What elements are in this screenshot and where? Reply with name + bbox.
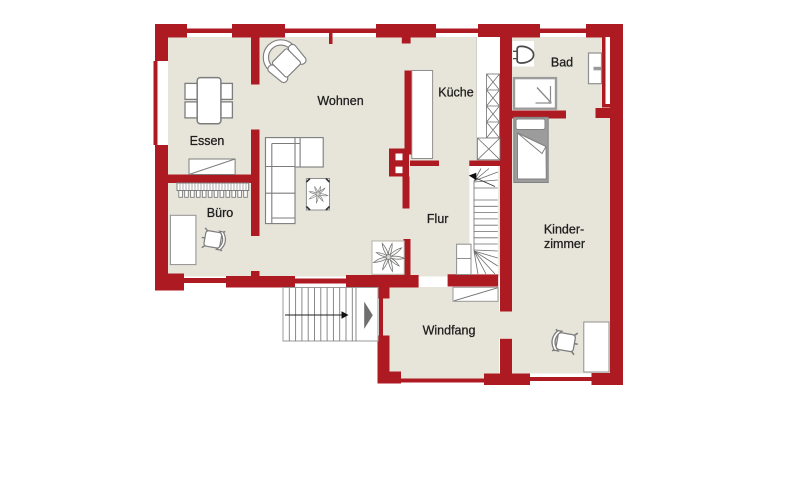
- svg-text:Flur: Flur: [427, 212, 449, 226]
- svg-text:Küche: Küche: [438, 86, 473, 100]
- svg-text:Kinder-: Kinder-: [544, 223, 584, 237]
- svg-text:Windfang: Windfang: [423, 324, 476, 338]
- svg-text:Wohnen: Wohnen: [317, 94, 363, 108]
- svg-text:zimmer: zimmer: [544, 237, 585, 251]
- svg-text:Essen: Essen: [190, 134, 225, 148]
- svg-text:Büro: Büro: [207, 206, 233, 220]
- svg-text:Bad: Bad: [551, 55, 573, 69]
